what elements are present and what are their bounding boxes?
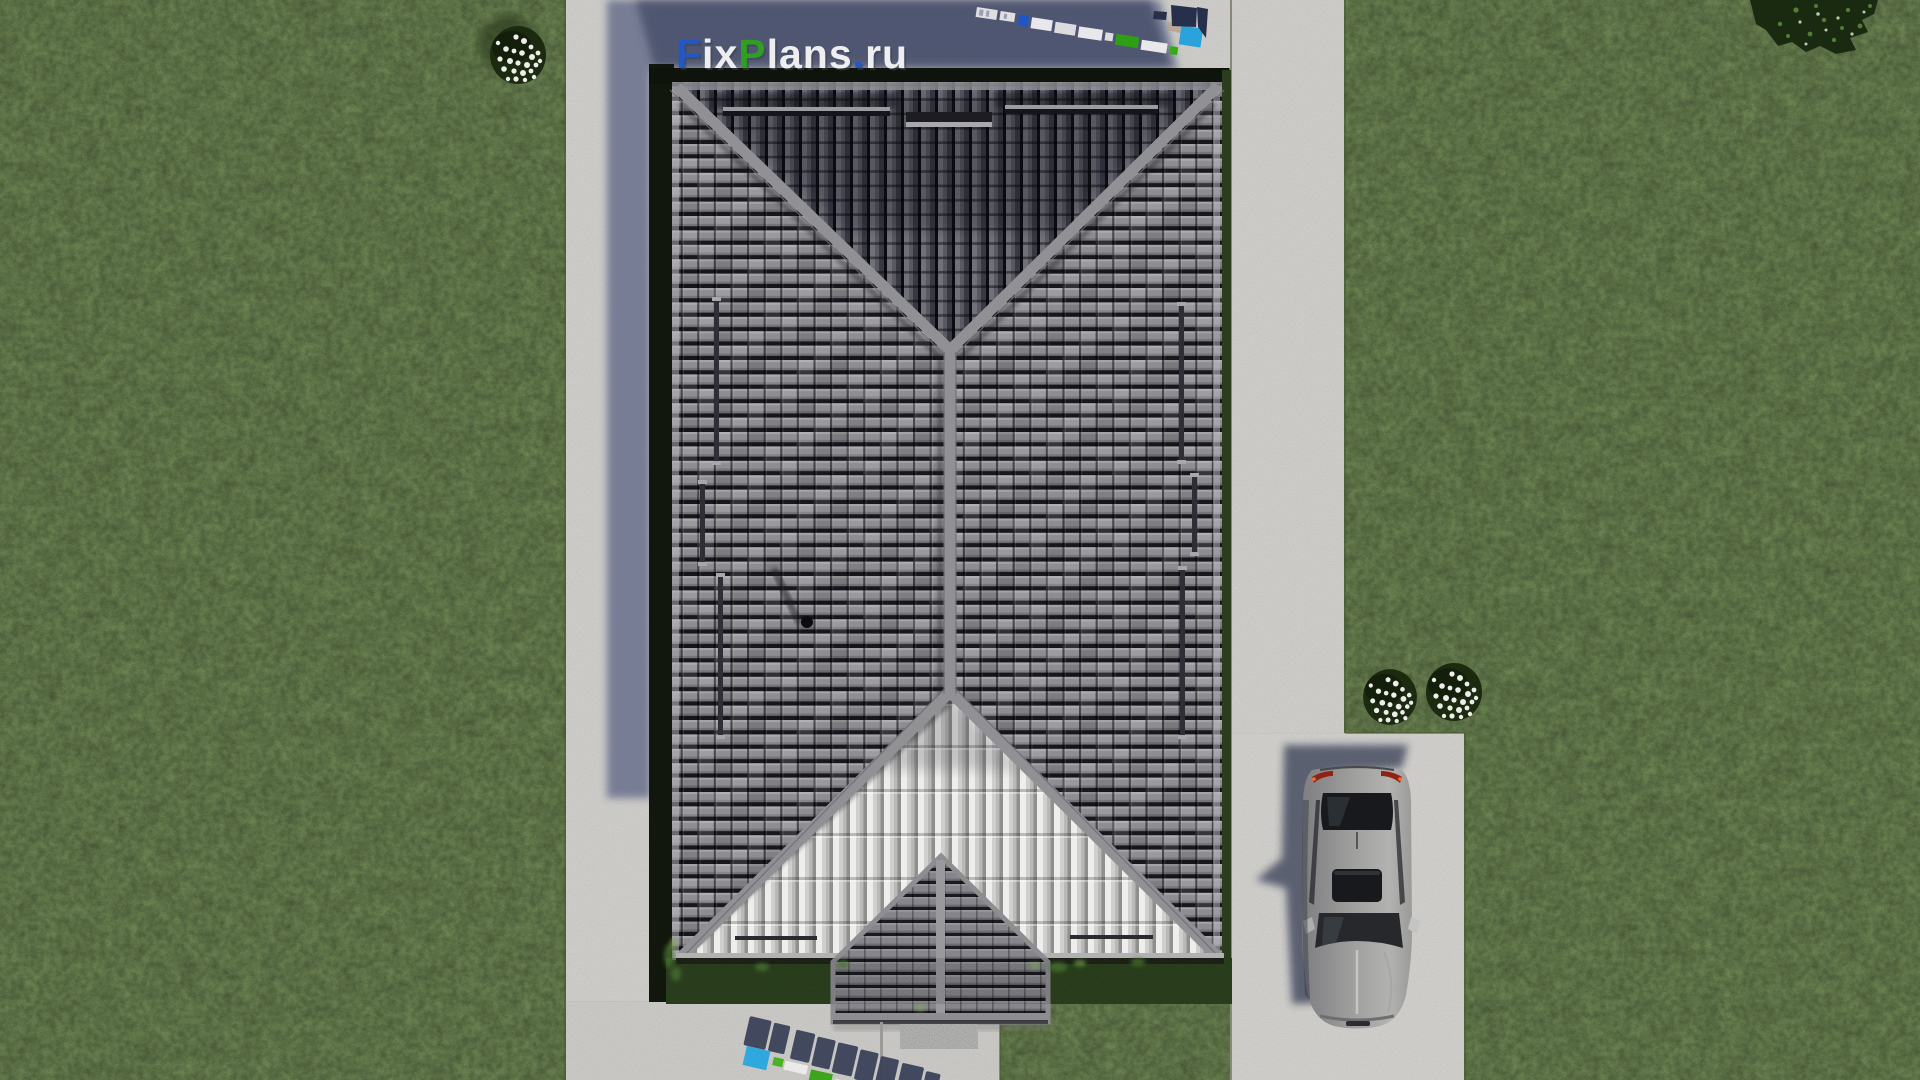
svg-text:FixPlans.ru: FixPlans.ru <box>676 31 908 77</box>
